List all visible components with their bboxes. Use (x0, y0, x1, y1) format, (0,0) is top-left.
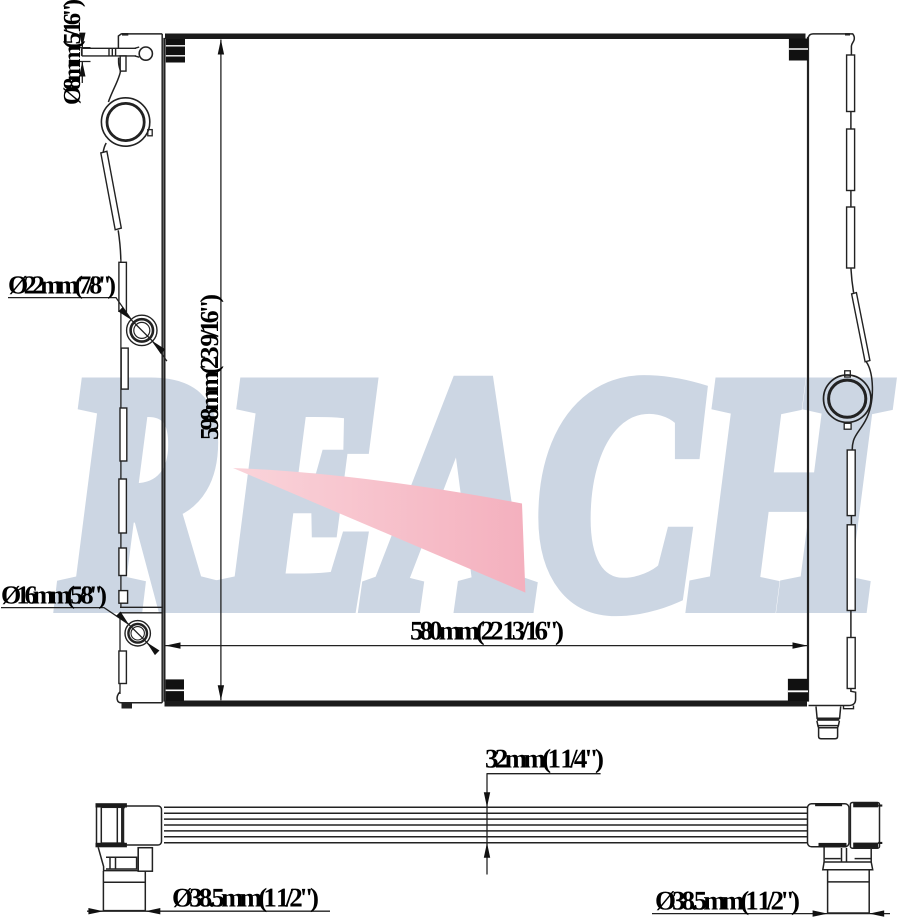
svg-text:Ø16mm(5/8"): Ø16mm(5/8") (1, 581, 107, 610)
svg-text:Ø38.5mm(1 1/2"): Ø38.5mm(1 1/2") (172, 883, 319, 913)
svg-text:Ø22mm(7/8"): Ø22mm(7/8") (8, 271, 116, 300)
svg-text:Ø8mm(5/16"): Ø8mm(5/16") (59, 0, 86, 105)
svg-text:32mm(1 1/4"): 32mm(1 1/4") (485, 744, 604, 774)
svg-text:598mm(23 9/16"): 598mm(23 9/16") (195, 294, 224, 440)
svg-text:580mm(22 13/16"): 580mm(22 13/16") (410, 616, 564, 646)
svg-text:Ø38.5mm(1 1/2"): Ø38.5mm(1 1/2") (655, 886, 800, 916)
